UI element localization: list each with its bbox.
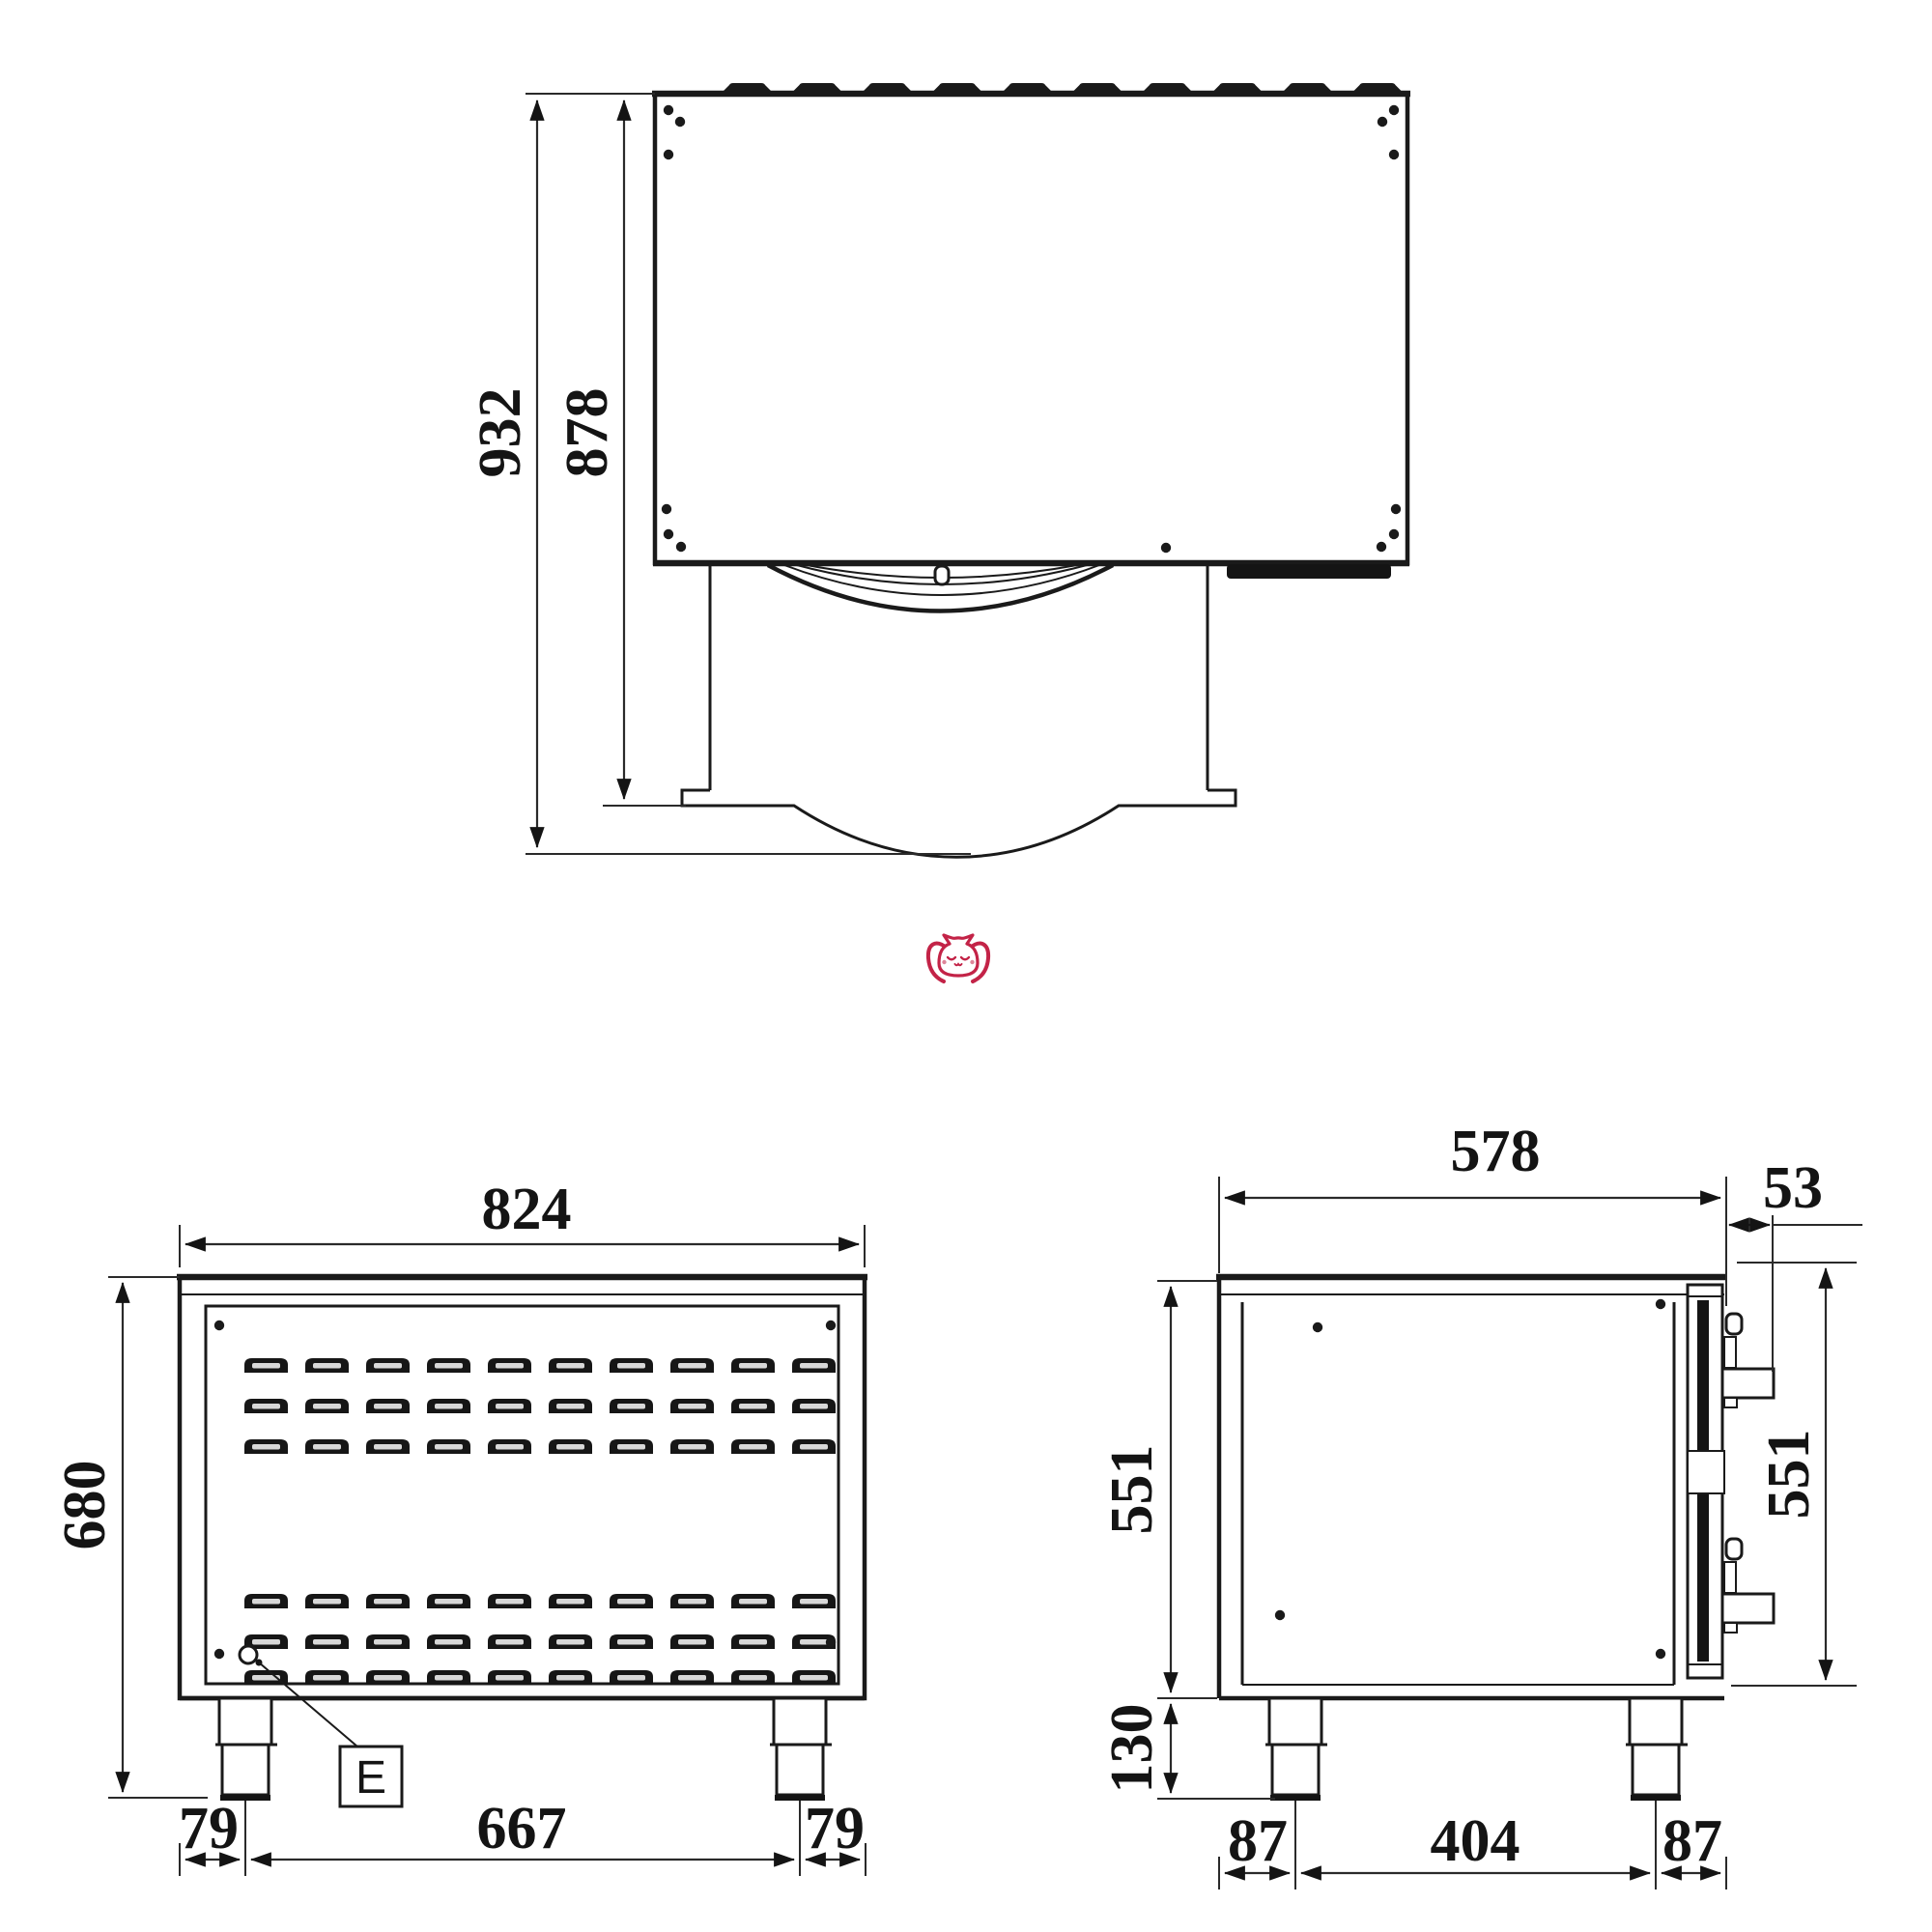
vent-tab-icon [861, 83, 914, 94]
dim-front-offset: 87 [1228, 1808, 1288, 1874]
louver-slot [252, 1639, 280, 1645]
louver-slot [800, 1444, 828, 1450]
screw-dot-icon [1389, 529, 1399, 539]
front-leg-right [770, 1698, 832, 1801]
vent-tab-icon [1001, 83, 1054, 94]
louver-slot [800, 1675, 828, 1681]
louver-slot [800, 1404, 828, 1409]
louver-slot [739, 1363, 767, 1369]
dim-front-height: 680 [52, 1461, 118, 1550]
screw-dot-icon [664, 150, 673, 159]
dim-total-depth: 932 [468, 388, 533, 478]
screw-dot-icon [826, 1637, 836, 1647]
dim-side-leg-span: 404 [1431, 1808, 1520, 1874]
louver-slot [435, 1675, 463, 1681]
louver-slot [374, 1444, 402, 1450]
louver-slot [374, 1639, 402, 1645]
screw-dot-icon [1313, 1322, 1322, 1332]
dim-leg-height: 130 [1099, 1704, 1165, 1794]
vent-tab-icon [1281, 83, 1334, 94]
louver-slot [678, 1444, 706, 1450]
louver-slot [252, 1363, 280, 1369]
side-door-joint [1688, 1451, 1724, 1493]
louver-slot [617, 1444, 645, 1450]
top-view-body-outline [655, 94, 1407, 563]
detail-e-hole [240, 1646, 257, 1663]
louver-slot [313, 1363, 341, 1369]
louver-slot [435, 1444, 463, 1450]
louver-slot [800, 1599, 828, 1605]
brand-logo-cat-icon [928, 935, 988, 981]
louver-slot [678, 1404, 706, 1409]
dim-leg-span: 667 [477, 1796, 567, 1861]
louver-slot [313, 1444, 341, 1450]
louver-slot [496, 1599, 524, 1605]
screw-dot-icon [664, 105, 673, 115]
louver-slot [374, 1599, 402, 1605]
dim-body-depth: 878 [554, 388, 620, 478]
dim-door-height: 551 [1756, 1430, 1822, 1520]
vent-tab-icon [791, 83, 844, 94]
side-hinge-top [1722, 1314, 1774, 1407]
louver-slot [374, 1363, 402, 1369]
louver-slot [556, 1675, 584, 1681]
dim-leg-left: 79 [179, 1796, 239, 1861]
vent-tab-icon [1351, 83, 1405, 94]
louver-slot [496, 1404, 524, 1409]
louver-slot [313, 1639, 341, 1645]
louver-slot [374, 1675, 402, 1681]
screw-dot-icon [662, 504, 671, 514]
louver-slot [678, 1363, 706, 1369]
louver-slot [617, 1675, 645, 1681]
screw-dot-icon [675, 117, 685, 127]
drawing-page: 932 878 E [0, 0, 1932, 1932]
louver-slot [739, 1599, 767, 1605]
screw-dot-icon [1389, 150, 1399, 159]
louver-slot [617, 1599, 645, 1605]
louver-slot [556, 1404, 584, 1409]
dim-back-offset: 87 [1662, 1808, 1722, 1874]
louver-slot [374, 1404, 402, 1409]
louver-slot [435, 1599, 463, 1605]
vent-tab-icon [721, 83, 774, 94]
louver-slot [496, 1363, 524, 1369]
louver-slot [496, 1639, 524, 1645]
louver-slot [252, 1599, 280, 1605]
screw-dot-icon [214, 1321, 224, 1330]
front-view: E 824 680 79 667 [52, 1177, 867, 1876]
screw-dot-icon [1391, 504, 1401, 514]
side-leg-left [1265, 1698, 1327, 1801]
louver-slot [800, 1639, 828, 1645]
louver-slot [739, 1675, 767, 1681]
screw-dot-icon [214, 1649, 224, 1659]
screw-dot-icon [1275, 1610, 1285, 1620]
louver-slot [739, 1404, 767, 1409]
louver-slot [556, 1599, 584, 1605]
louver-slot [739, 1444, 767, 1450]
screw-dot-icon [664, 529, 673, 539]
side-view: 578 53 551 130 551 87 404 87 [1099, 1119, 1862, 1889]
dim-leg-right: 79 [805, 1796, 865, 1861]
handle-bar-plan [1227, 564, 1391, 579]
side-leg-right [1626, 1698, 1688, 1801]
louver-slot [617, 1404, 645, 1409]
screw-dot-icon [1656, 1299, 1665, 1309]
louver-slot [496, 1444, 524, 1450]
louver-slot [678, 1639, 706, 1645]
side-door [1688, 1285, 1724, 1678]
dim-door-offset: 53 [1763, 1155, 1823, 1221]
louver-slot [435, 1639, 463, 1645]
screw-dot-icon [1389, 105, 1399, 115]
louver-slot [313, 1675, 341, 1681]
louver-slot [252, 1444, 280, 1450]
vent-tab-icon [1211, 83, 1264, 94]
louver-slot [617, 1639, 645, 1645]
louver-slot [678, 1599, 706, 1605]
dim-body-height: 551 [1099, 1445, 1165, 1535]
louver-slot [435, 1363, 463, 1369]
vent-tab-icon [1141, 83, 1194, 94]
louver-slot [556, 1639, 584, 1645]
screw-dot-icon [1161, 543, 1171, 553]
louver-slot [556, 1363, 584, 1369]
front-leg-left [215, 1698, 277, 1801]
louver-slot [313, 1599, 341, 1605]
open-door-bottom-plate [682, 790, 1236, 857]
louver-slot [617, 1363, 645, 1369]
louver-slot [252, 1404, 280, 1409]
door-latch-keyhole [935, 566, 949, 584]
technical-drawing: 932 878 E [0, 0, 1932, 1932]
top-view: 932 878 [468, 83, 1410, 857]
dim-side-depth: 578 [1451, 1119, 1541, 1184]
screw-dot-icon [826, 1321, 836, 1330]
louver-slot [800, 1363, 828, 1369]
louver-slot [556, 1444, 584, 1450]
louver-slot [435, 1404, 463, 1409]
side-hinge-bottom [1722, 1539, 1774, 1633]
louver-slot [739, 1639, 767, 1645]
louver-slot [678, 1675, 706, 1681]
louver-slot [496, 1675, 524, 1681]
screw-dot-icon [676, 542, 686, 552]
detail-e-label: E [355, 1752, 386, 1804]
vent-tab-icon [1071, 83, 1124, 94]
screw-dot-icon [1656, 1649, 1665, 1659]
louver-slot [313, 1404, 341, 1409]
dim-front-width: 824 [482, 1177, 572, 1242]
vent-tab-icon [931, 83, 984, 94]
screw-dot-icon [1377, 542, 1386, 552]
screw-dot-icon [1378, 117, 1387, 127]
